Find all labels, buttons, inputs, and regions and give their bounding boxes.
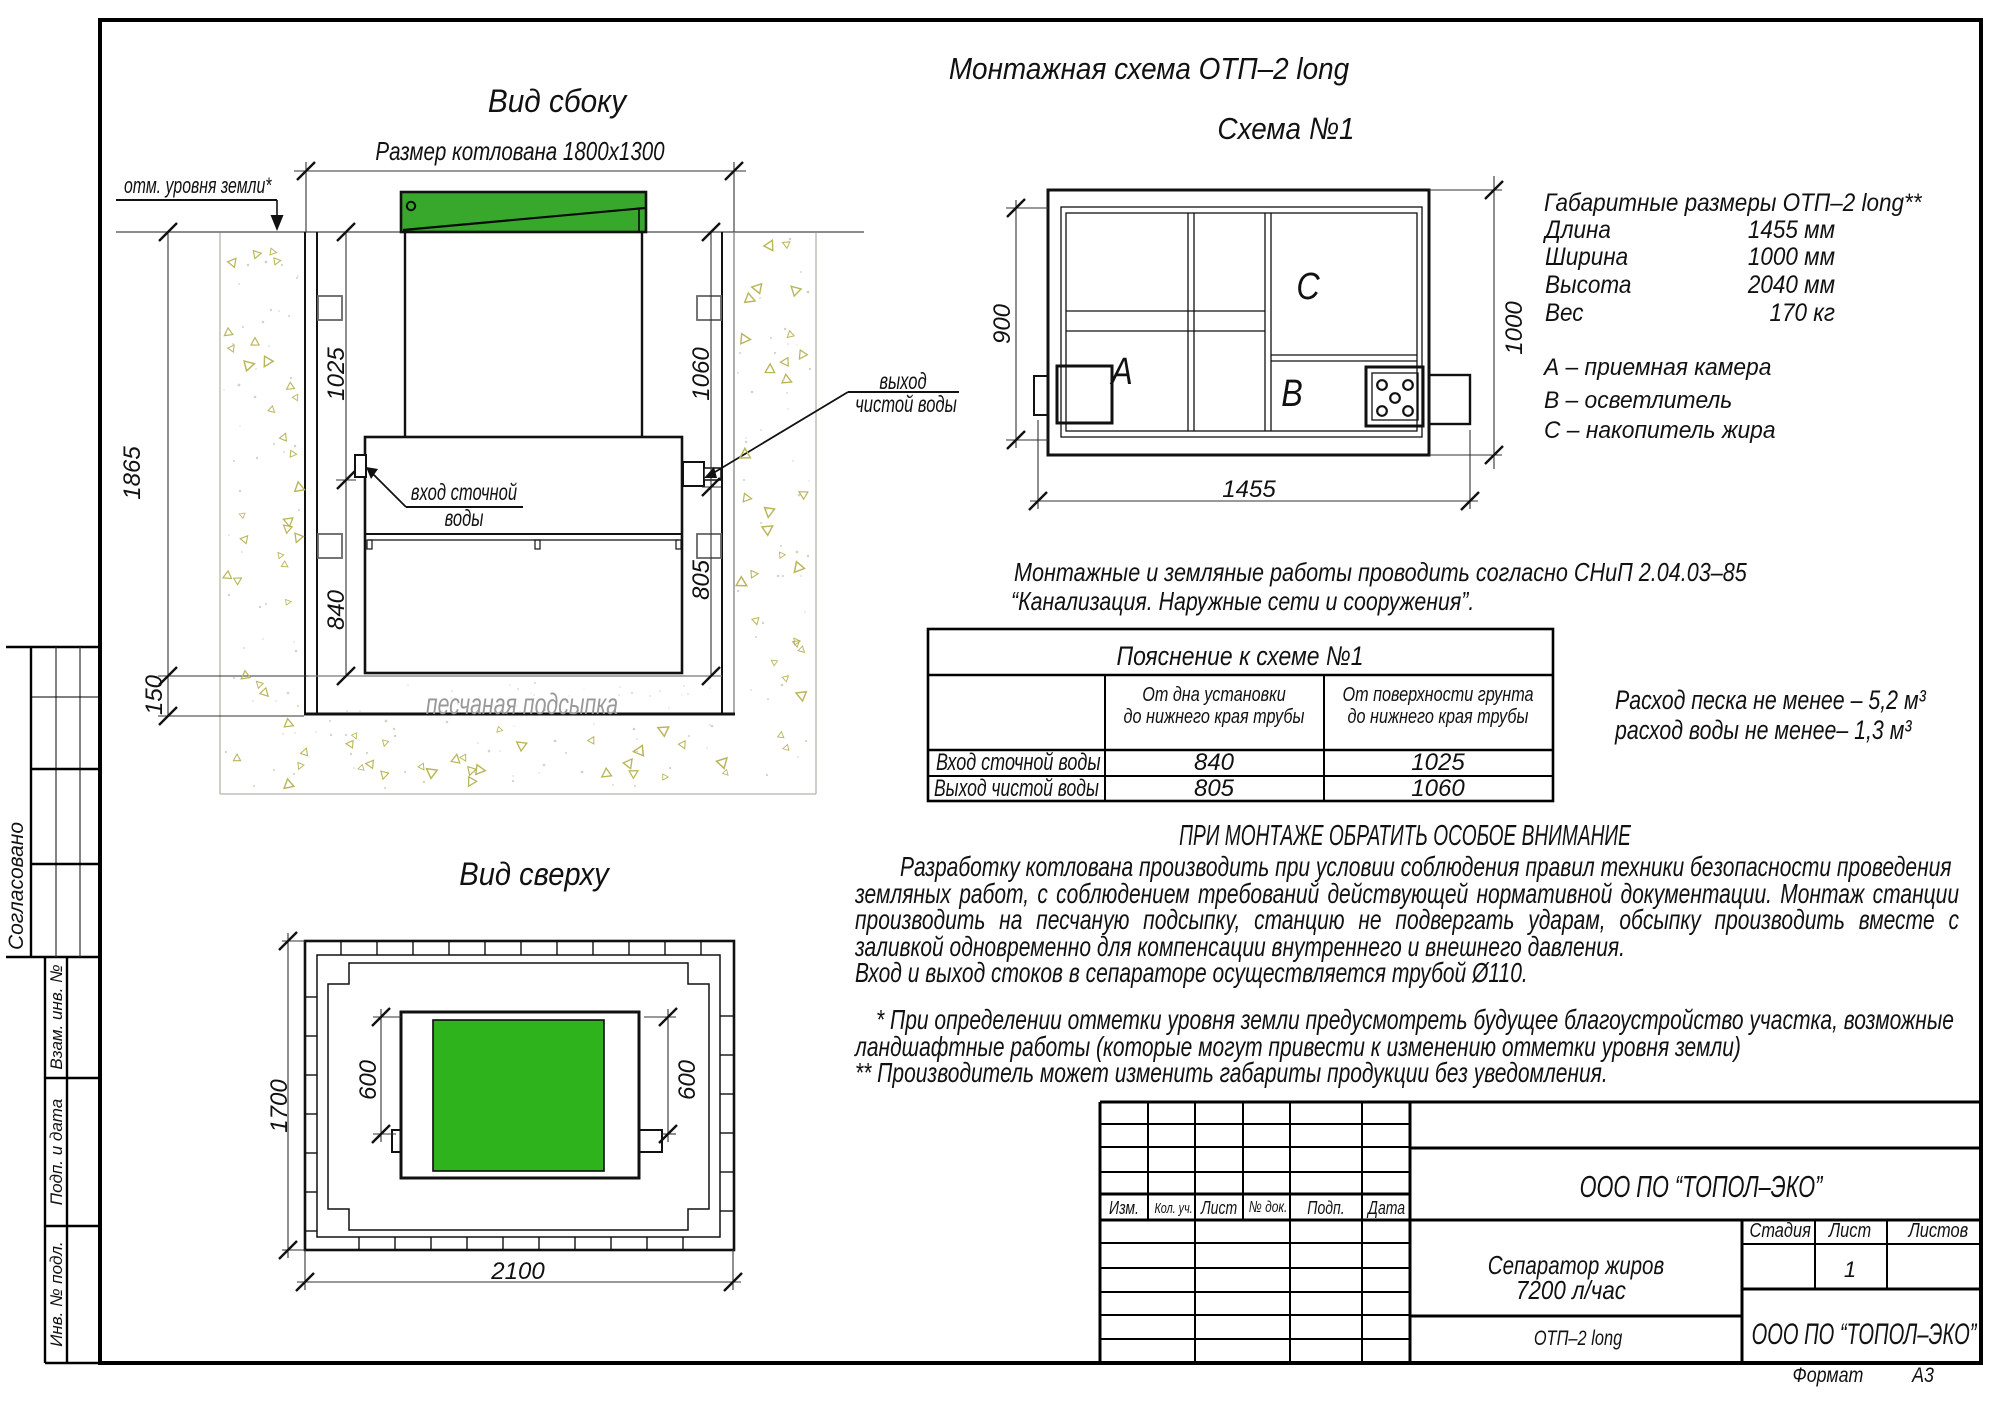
svg-text:1060: 1060 xyxy=(688,347,715,401)
svg-text:Взам. инв. №: Взам. инв. № xyxy=(47,964,66,1069)
svg-text:840: 840 xyxy=(323,589,350,630)
svg-text:2100: 2100 xyxy=(490,1258,545,1285)
svg-text:600: 600 xyxy=(355,1059,382,1100)
svg-text:150: 150 xyxy=(141,674,168,715)
svg-text:1700: 1700 xyxy=(266,1079,293,1133)
svg-text:1455: 1455 xyxy=(1222,476,1276,503)
svg-text:Инв. № подл.: Инв. № подл. xyxy=(47,1241,66,1347)
svg-text:1025: 1025 xyxy=(323,347,350,401)
svg-text:Подп. и дата: Подп. и дата xyxy=(47,1099,66,1205)
svg-text:Согласовано: Согласовано xyxy=(5,822,28,950)
svg-text:600: 600 xyxy=(674,1059,701,1100)
svg-text:900: 900 xyxy=(989,303,1016,344)
svg-text:1865: 1865 xyxy=(119,446,146,500)
svg-text:805: 805 xyxy=(688,559,715,600)
